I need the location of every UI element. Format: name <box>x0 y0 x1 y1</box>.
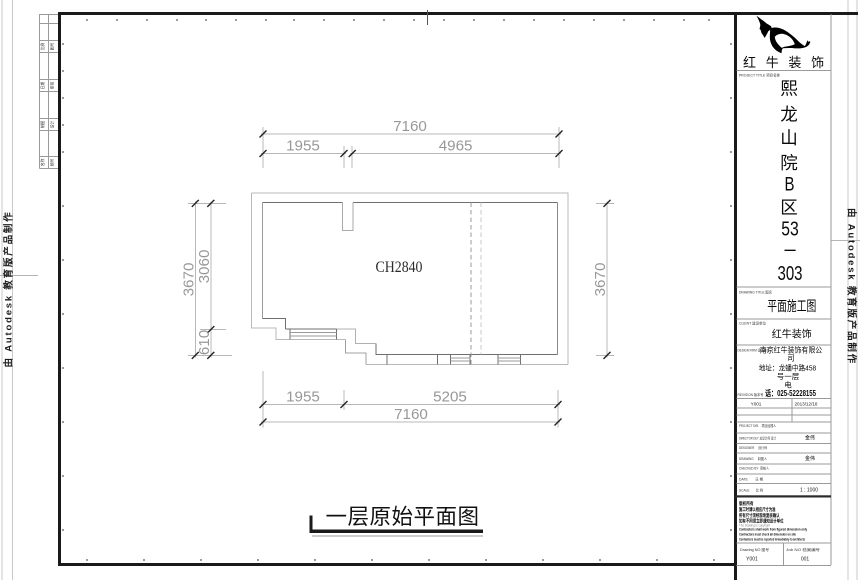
svg-text:熙: 熙 <box>780 79 798 99</box>
svg-text:3670: 3670 <box>592 263 609 297</box>
svg-text:地址：龙蟠中路458: 地址：龙蟠中路458 <box>759 363 817 373</box>
svg-text:日期: 日期 <box>40 82 45 90</box>
svg-text:5205: 5205 <box>433 389 467 406</box>
svg-text:Y001: Y001 <box>751 402 762 407</box>
svg-text:CHECKED BY 审核人: CHECKED BY 审核人 <box>739 466 770 471</box>
svg-text:4965: 4965 <box>439 138 473 155</box>
svg-text:B: B <box>785 174 795 196</box>
svg-text:PROJECT TITLE 项目名称: PROJECT TITLE 项目名称 <box>739 73 781 78</box>
svg-text:610: 610 <box>196 330 213 355</box>
svg-text:名称: 名称 <box>40 159 45 167</box>
svg-text:DRAWING TITLE 图名: DRAWING TITLE 图名 <box>739 290 772 295</box>
svg-text:龙: 龙 <box>780 105 798 125</box>
svg-text:设计: 设计 <box>50 121 55 129</box>
svg-text:53: 53 <box>781 219 799 241</box>
svg-text:7160: 7160 <box>393 118 427 135</box>
svg-text:PROJECT DIR. 项目经理人: PROJECT DIR. 项目经理人 <box>739 423 777 428</box>
svg-text:2013/12/18: 2013/12/18 <box>795 402 818 407</box>
svg-text:DIRECTOR DEY 总设计师 设计: DIRECTOR DEY 总设计师 设计 <box>739 435 777 440</box>
svg-text:CH2840: CH2840 <box>376 259 423 276</box>
svg-text:金伟: 金伟 <box>805 455 815 462</box>
svg-text:电: 电 <box>784 380 792 390</box>
svg-text:DATE 日 期: DATE 日 期 <box>739 477 763 482</box>
svg-text:Contractors must check all dim: Contractors must check all dimension on … <box>739 532 796 536</box>
svg-text:3060: 3060 <box>196 250 213 284</box>
svg-text:山: 山 <box>780 128 798 148</box>
svg-text:由 Autodesk 教育版产品制作: 由 Autodesk 教育版产品制作 <box>846 208 858 365</box>
svg-text:比例: 比例 <box>40 43 45 51</box>
svg-text:REVISION 版本号: REVISION 版本号 <box>738 392 764 397</box>
svg-text:院: 院 <box>780 153 798 173</box>
svg-text:303: 303 <box>778 263 803 285</box>
svg-text:版权所有: 版权所有 <box>739 500 754 507</box>
svg-text:–: – <box>784 239 796 261</box>
svg-text:3670: 3670 <box>180 263 197 297</box>
svg-text:Job NO 档案编号: Job NO 档案编号 <box>786 547 820 552</box>
svg-text:1955: 1955 <box>286 389 320 406</box>
svg-text:红牛装饰: 红牛装饰 <box>743 55 834 70</box>
svg-text:编号: 编号 <box>50 159 55 167</box>
svg-text:DESIGNER 设计师: DESIGNER 设计师 <box>739 445 768 450</box>
svg-text:图号: 图号 <box>50 43 55 51</box>
svg-text:1 : 1000: 1 : 1000 <box>800 487 818 493</box>
svg-text:司: 司 <box>787 354 795 363</box>
svg-text:1955: 1955 <box>286 138 320 155</box>
svg-text:由 Autodesk 教育版产品制作: 由 Autodesk 教育版产品制作 <box>3 211 15 368</box>
svg-text:SCALE 比 例: SCALE 比 例 <box>739 487 763 492</box>
svg-text:CLIENT 建设单位: CLIENT 建设单位 <box>739 321 767 326</box>
svg-text:话：025-52228155: 话：025-52228155 <box>765 388 816 398</box>
svg-text:DRAWING 制图人: DRAWING 制图人 <box>739 456 768 461</box>
svg-text:Drawing NO 图号: Drawing NO 图号 <box>740 547 769 552</box>
svg-text:Contractors shall work from fi: Contractors shall work from figured dime… <box>739 528 807 532</box>
svg-text:金伟: 金伟 <box>805 434 815 441</box>
svg-text:区: 区 <box>780 198 798 218</box>
svg-text:制图: 制图 <box>40 121 45 129</box>
svg-text:001: 001 <box>801 557 810 563</box>
svg-text:Contractors must be reported i: Contractors must be reported immediately… <box>739 537 805 541</box>
svg-text:红牛装饰: 红牛装饰 <box>772 328 812 341</box>
svg-text:施工时请以相应尺寸为准: 施工时请以相应尺寸为准 <box>738 506 776 513</box>
svg-text:Y001: Y001 <box>746 557 758 563</box>
svg-text:平面施工图: 平面施工图 <box>767 298 816 314</box>
svg-text:审核: 审核 <box>50 82 55 90</box>
svg-text:7160: 7160 <box>394 406 428 423</box>
svg-text:一层原始平面图: 一层原始平面图 <box>325 505 479 529</box>
